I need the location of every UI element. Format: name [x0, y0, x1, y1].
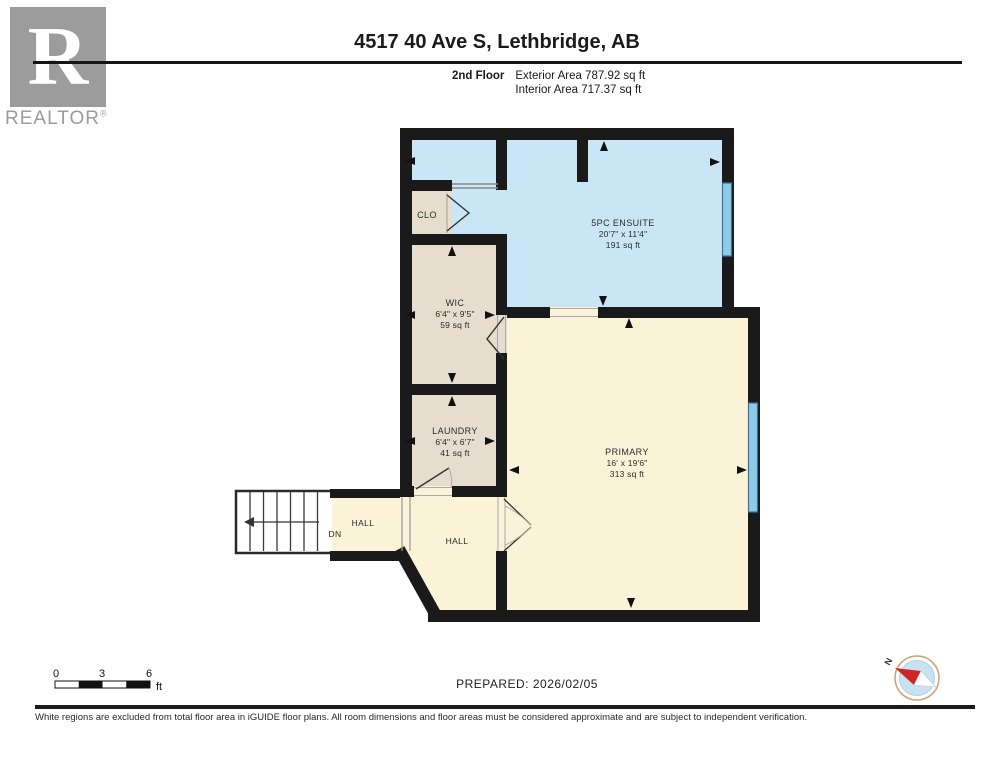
header-divider: [33, 61, 962, 64]
wall-segment: [400, 128, 734, 140]
prepared-date: PREPARED: 2026/02/05: [456, 677, 598, 691]
room-ensuite-name: 5PC ENSUITE: [591, 218, 654, 228]
room-wic-name: WIC: [446, 298, 465, 308]
scale-tick-3: 3: [99, 668, 105, 680]
scale-tick-0: 0: [53, 668, 59, 680]
wall-segment: [598, 307, 760, 318]
room-hall-left-label: HALL: [352, 518, 375, 528]
wall-segment: [400, 486, 414, 497]
window-glyph: [749, 403, 758, 512]
room-ensuite-dims: 20'7" x 11'4": [599, 229, 648, 239]
staircase: [236, 491, 332, 553]
stairs-dn-label: DN: [328, 529, 341, 539]
wall-segment: [400, 384, 507, 395]
wall-segment: [577, 128, 588, 182]
room-closet-label: CLO: [417, 210, 437, 220]
room-primary-dims: 16' x 19'6": [606, 458, 647, 468]
compass-north-label: N: [882, 656, 894, 666]
floor-plan-drawing: 5PC ENSUITE 20'7" x 11'4" 191 sq ft PRIM…: [0, 0, 994, 768]
footer-divider: [35, 705, 975, 709]
room-primary-name: PRIMARY: [605, 447, 649, 457]
wall-segment: [330, 551, 402, 561]
room-ensuite-area: 191 sq ft: [606, 240, 641, 250]
floor-plan-page: R REALTOR® 4517 40 Ave S, Lethbridge, AB…: [0, 0, 994, 768]
room-primary-area: 313 sq ft: [610, 469, 645, 479]
scale-bar-segment: [79, 681, 103, 688]
room-laundry-area: 41 sq ft: [440, 448, 470, 458]
disclaimer-text: White regions are excluded from total fl…: [35, 712, 965, 723]
wall-segment: [400, 234, 507, 245]
wall-segment: [496, 234, 507, 315]
wall-segment: [428, 610, 760, 622]
room-floors: [330, 134, 754, 616]
scale-bar-segment: [126, 681, 150, 688]
compass-icon: N: [882, 656, 939, 700]
hall-floor: [400, 492, 502, 616]
wall-segment: [496, 551, 507, 621]
room-wic-area: 59 sq ft: [440, 320, 470, 330]
wall-segment: [496, 395, 507, 497]
room-wic-dims: 6'4" x 9'5": [435, 309, 474, 319]
scale-tick-6: 6: [146, 668, 152, 680]
scale-bar: 0 3 6 ft: [53, 668, 162, 693]
wall-segment: [496, 128, 507, 190]
window-glyph: [723, 183, 732, 256]
room-hall-center-label: HALL: [446, 536, 469, 546]
wall-segment: [400, 180, 452, 191]
wall-segment: [330, 489, 400, 498]
room-laundry-dims: 6'4" x 6'7": [435, 437, 474, 447]
room-laundry-name: LAUNDRY: [432, 426, 478, 436]
scale-unit-label: ft: [156, 681, 162, 693]
